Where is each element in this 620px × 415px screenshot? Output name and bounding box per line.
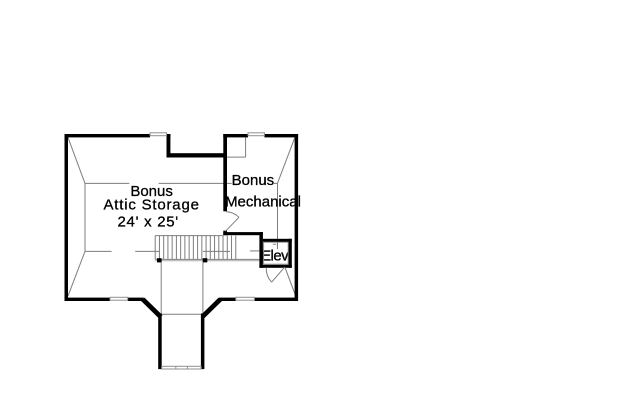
svg-text:Elev: Elev <box>261 247 289 264</box>
svg-text:Bonus: Bonus <box>232 172 275 189</box>
svg-text:Attic Storage: Attic Storage <box>103 197 199 214</box>
svg-text:Mechanical: Mechanical <box>225 193 301 210</box>
svg-text:24' x 25': 24' x 25' <box>117 214 178 231</box>
